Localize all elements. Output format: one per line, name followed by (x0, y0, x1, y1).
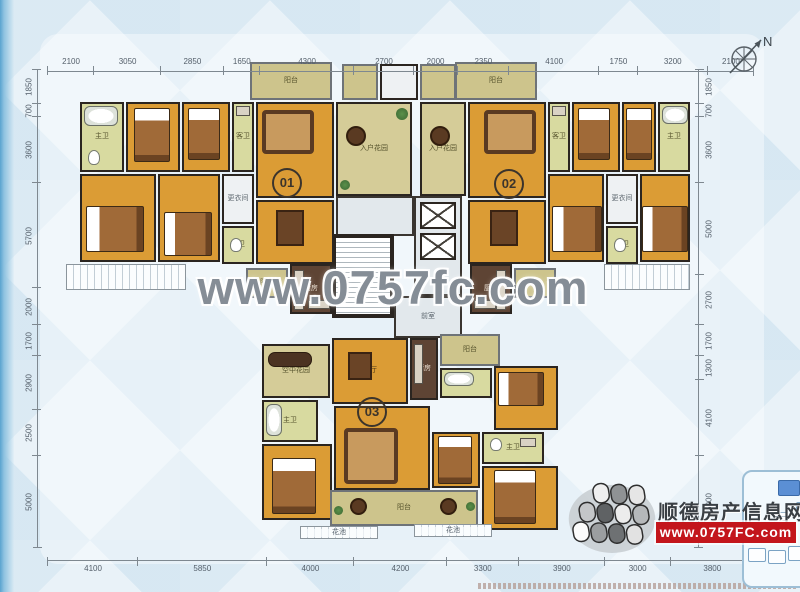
dimension-value: 2700 (705, 291, 714, 309)
dining-table (348, 352, 372, 380)
dimension-value: 1700 (705, 332, 714, 350)
toilet (614, 238, 626, 252)
dimension-segment: 2000 (23, 288, 38, 325)
scan-edge (0, 0, 14, 592)
dimension-segment: 2350 (458, 57, 510, 72)
dimension-segment: 3300 (447, 560, 519, 575)
elevator (420, 202, 456, 229)
dimension-row-top: 2100305028501650430027002000235041001750… (48, 57, 754, 72)
round-table (430, 126, 450, 146)
dimension-value: 4100 (705, 409, 714, 427)
dimension-segment: 4200 (354, 560, 446, 575)
sofa (262, 110, 314, 154)
dimension-value: 1750 (609, 57, 627, 66)
bed (552, 206, 602, 252)
room-label: 更衣间 (608, 195, 636, 203)
bathtub (266, 404, 282, 436)
watermark: www.0757fc.com (128, 260, 658, 315)
dimension-segment: 1700 (698, 325, 713, 356)
dimension-value: 2850 (183, 57, 201, 66)
round-table (440, 498, 457, 515)
compass-icon: N (724, 30, 778, 80)
dimension-value: 2900 (25, 374, 34, 392)
dimension-segment: 4100 (698, 380, 713, 456)
room-label: 客卫 (550, 133, 568, 141)
dimension-segment: 1850 (23, 70, 38, 104)
dimension-value: 4300 (298, 57, 316, 66)
room-planter-03b: 花池 (414, 524, 492, 537)
chaise-lounge (268, 352, 312, 367)
plant (466, 502, 475, 511)
dimension-value: 4100 (84, 564, 102, 573)
dimension-value: 4200 (392, 564, 410, 573)
dimension-segment: 5850 (138, 560, 266, 575)
dimension-segment: 1700 (23, 325, 38, 356)
room-dressing-01: 更衣间 (222, 174, 254, 224)
dimension-value: 5850 (193, 564, 211, 573)
dimension-segment: 5700 (23, 183, 38, 288)
unit-badge-01: 01 (272, 168, 302, 198)
unit-badge-03: 03 (357, 397, 387, 427)
dimension-value: 3000 (629, 564, 647, 573)
room-label: 更衣间 (224, 195, 252, 203)
bed (494, 470, 536, 524)
dimension-segment: 1750 (599, 57, 637, 72)
dimension-column-right: 18507003600500027001700130041005000 (698, 70, 713, 548)
plant (334, 506, 343, 515)
site-name: 顺德房产信息网 (658, 496, 798, 525)
dimension-value: 2500 (25, 424, 34, 442)
dimension-segment: 5000 (23, 456, 38, 548)
counter (236, 106, 250, 116)
dimension-segment: 3000 (605, 560, 671, 575)
dimension-value: 5000 (705, 220, 714, 238)
bed (642, 206, 688, 252)
bathtub (662, 106, 688, 124)
building-outline (788, 546, 800, 561)
bed (626, 108, 652, 160)
dimension-value: 5000 (25, 493, 34, 511)
dimension-segment: 2700 (354, 57, 413, 72)
bed (272, 458, 316, 514)
sofa (484, 110, 536, 154)
toilet (490, 438, 502, 451)
dimension-segment: 3600 (23, 117, 38, 183)
room-label: 花池 (301, 529, 377, 537)
room-label: 花池 (415, 527, 491, 535)
dimension-value: 1300 (705, 359, 714, 377)
dimension-value: 700 (705, 104, 714, 117)
dimension-value: 2700 (375, 57, 393, 66)
room-label: 入户花园 (338, 145, 410, 153)
building-outline (768, 550, 786, 564)
dimension-segment: 4100 (48, 560, 138, 575)
dimension-value: 3050 (119, 57, 137, 66)
room-label: 阳台 (457, 77, 535, 85)
room-label: 主卫 (82, 133, 122, 141)
dining-table (276, 210, 304, 246)
unit-badge-02: 02 (494, 169, 524, 199)
room-entry-garden-02: 入户花园 (420, 102, 466, 196)
bed (134, 108, 170, 162)
bed (188, 108, 220, 160)
dimension-segment: 4100 (509, 57, 599, 72)
dimension-value: 3300 (474, 564, 492, 573)
bed (438, 436, 472, 484)
counter (520, 438, 536, 447)
site-url: www.0757FC.com (656, 522, 796, 543)
bed (498, 372, 544, 406)
plant (396, 108, 408, 120)
dining-table (490, 210, 518, 246)
dimension-segment: 2900 (23, 356, 38, 409)
dimension-value: 3200 (664, 57, 682, 66)
bed (578, 108, 610, 160)
dimension-segment: 1300 (698, 356, 713, 380)
counter (414, 344, 423, 384)
roof-tiles-icon (566, 478, 658, 558)
dimension-value: 4100 (545, 57, 563, 66)
bed (164, 212, 212, 256)
room-dressing-02: 更衣间 (606, 174, 638, 224)
highlighted-building (778, 480, 800, 496)
dimension-segment: 3900 (519, 560, 605, 575)
plant (340, 180, 350, 190)
room-label: 入户花园 (422, 145, 464, 153)
room-label: 阳台 (442, 346, 498, 354)
dimension-value: 2100 (62, 57, 80, 66)
dimension-value: 1850 (705, 78, 714, 96)
dimension-value: 4000 (302, 564, 320, 573)
dimension-segment: 2500 (23, 410, 38, 456)
round-table (346, 126, 366, 146)
dimension-value: 1850 (25, 78, 34, 96)
room-hall-top (336, 196, 414, 236)
bed (86, 206, 144, 252)
dimension-value: 2000 (427, 57, 445, 66)
dimension-value: 5700 (25, 227, 34, 245)
dimension-segment: 1650 (224, 57, 260, 72)
dimension-value: 3600 (25, 141, 34, 159)
dimension-value: 1650 (233, 57, 251, 66)
dimension-segment: 4300 (260, 57, 354, 72)
compass-north-label: N (763, 34, 772, 49)
dimension-segment: 5000 (698, 183, 713, 275)
sofa (344, 428, 398, 484)
round-table (350, 498, 367, 515)
room-balcony-03a: 阳台 (440, 334, 500, 366)
toilet (88, 150, 100, 165)
dimension-segment: 3050 (94, 57, 161, 72)
dimension-segment: 2000 (414, 57, 458, 72)
dimension-value: 2350 (474, 57, 492, 66)
dimension-segment: 1850 (698, 70, 713, 104)
room-label: 阳台 (252, 77, 330, 85)
toilet (230, 238, 242, 252)
room-label: 主卫 (660, 133, 688, 141)
bathtub (444, 372, 474, 386)
dimension-segment: 2700 (698, 275, 713, 325)
room-label: 客卫 (234, 133, 252, 141)
dimension-segment: 2100 (48, 57, 94, 72)
dimension-value: 2000 (25, 298, 34, 316)
dimension-segment: 4000 (267, 560, 355, 575)
floorplan-page: 2100305028501650430027002000235041001750… (0, 0, 800, 592)
dimension-segment: 2850 (161, 57, 224, 72)
room-planter-03a: 花池 (300, 526, 378, 539)
dimension-value: 3800 (703, 564, 721, 573)
dimension-value: 3600 (705, 141, 714, 159)
dimension-row-bottom: 41005850400042003300390030003800 (48, 560, 754, 575)
dimension-column-left: 18507003600570020001700290025005000 (23, 70, 38, 548)
room-label: 空中花园 (264, 367, 328, 375)
dimension-segment: 3600 (698, 117, 713, 183)
elevator (420, 233, 456, 260)
counter (552, 106, 566, 116)
dimension-value: 1700 (25, 332, 34, 350)
dimension-value: 3900 (553, 564, 571, 573)
building-outline (748, 548, 766, 562)
bathtub (84, 106, 118, 126)
